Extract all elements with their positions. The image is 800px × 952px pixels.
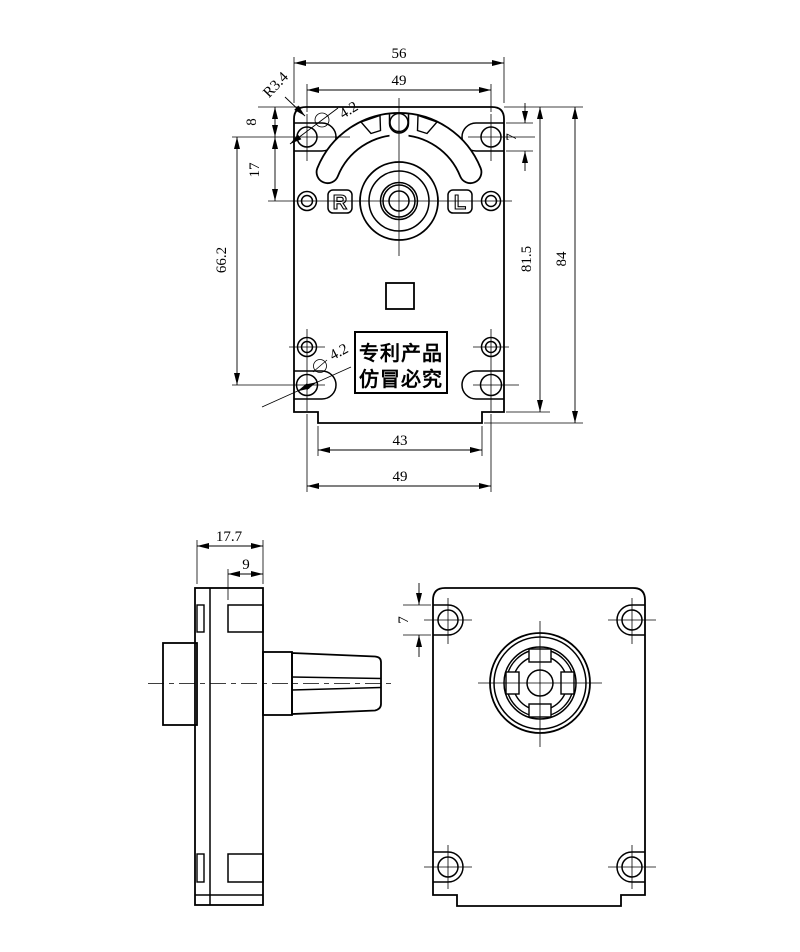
dim-width-top: 56 [392,46,408,62]
side-motor-block [163,643,197,725]
dim-depth-front: 9 [242,557,250,573]
front-view: R L 专利产品 仿冒必究 [214,46,583,492]
patent-text-line2: 仿冒必究 [359,367,443,391]
dim-hole-span-bottom: 49 [393,469,408,485]
dim-hole-span-side: 66.2 [214,247,230,273]
side-view: 17.7 9 [148,529,396,905]
patent-label: 专利产品 仿冒必究 [355,332,447,393]
direction-mark-r: R [328,190,352,214]
dim-hole-pitch: 17 [247,162,263,178]
dim-edge-to-hole: 8 [244,118,260,126]
side-shaft-flat-upper [292,677,381,679]
dim-corner-radius: R3.4 [260,69,292,101]
dim-height-total: 84 [554,251,570,267]
rear-view: 7 [396,583,656,906]
dim-slot-height-front: 7 [504,133,520,141]
dim-height-body: 81.5 [519,246,535,272]
rear-body-outline [433,588,645,906]
side-body-outline [195,588,263,905]
dim-step-width: 43 [393,433,408,449]
dim-hole-dia-bottom: 4.2 [327,341,351,364]
front-square-cutout [386,283,414,309]
side-notch-top [228,605,263,632]
dim-slot-height-rear: 7 [396,616,412,624]
patent-text-line1: 专利产品 [359,341,443,365]
side-shaft-flat-lower [292,688,381,691]
dim-hole-span-top: 49 [392,73,407,89]
label-l: L [454,192,466,214]
side-rib-top [197,605,204,632]
label-r: R [333,192,348,214]
side-rib-bottom [197,854,204,882]
dim-hole-dia-top: 4.2 [337,99,361,122]
direction-mark-l: L [448,190,472,214]
side-dimensions: 17.7 9 [197,529,263,600]
drawing-sheet: R L 专利产品 仿冒必究 [0,0,800,952]
engineering-drawing: R L 专利产品 仿冒必究 [0,0,800,952]
side-notch-bottom [228,854,263,882]
dim-depth-total: 17.7 [216,529,243,545]
rear-centerlines [424,598,656,889]
